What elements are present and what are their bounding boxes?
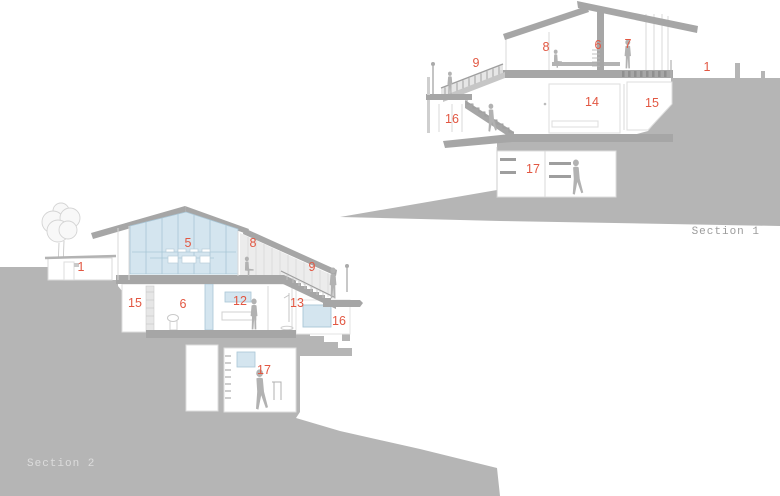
sections-drawing: 9 8 6 7 1 14 15 16 17 Section 1: [0, 0, 780, 496]
room-label-15-s1: 15: [645, 96, 659, 110]
room-label-15-s2: 15: [128, 296, 142, 310]
desk-s1: [552, 62, 620, 66]
roof-left-s1: [503, 6, 589, 40]
window-room17-s2: [237, 352, 255, 367]
section-1-title: Section 1: [692, 226, 760, 238]
lower-slab-s2: [146, 330, 296, 338]
basement-s2: [186, 345, 296, 412]
room-label-6-s1: 6: [595, 38, 602, 52]
room-label-8-s2: 8: [250, 236, 257, 250]
section-1-drawing: 9 8 6 7 1 14 15 16 17 Section 1: [340, 1, 780, 238]
air-under-terrace: [443, 147, 497, 198]
room-17-s1: [497, 151, 616, 197]
room-14: [544, 84, 620, 133]
person-descending-stair-s1: [488, 104, 496, 132]
room-label-16-s2: 16: [332, 314, 346, 328]
glass-door-s2: [205, 284, 213, 330]
room-label-13-s2: 13: [290, 296, 304, 310]
room-label-7-s1: 7: [625, 37, 632, 51]
section-2-drawing: 1 5 8 9 15 6 12 13 16 17 Section 2: [0, 203, 500, 496]
main-floor-slab-s2: [116, 275, 296, 284]
room-label-12-s2: 12: [233, 294, 247, 308]
room-label-14-s1: 14: [585, 95, 599, 109]
section-2-title: Section 2: [27, 458, 95, 470]
room-label-17-s2: 17: [257, 363, 271, 377]
room-label-1-s2: 1: [78, 260, 85, 274]
terrain-marker: [761, 71, 765, 78]
middle-level-s2: [122, 284, 296, 332]
lamp-post-s1: [427, 62, 435, 95]
room-label-6-s2: 6: [180, 297, 187, 311]
room-label-1-s1: 1: [704, 60, 711, 74]
toilet-s2: [168, 315, 179, 322]
room-label-16-s1: 16: [445, 112, 459, 126]
left-wall-s2: [118, 226, 129, 280]
architectural-sections-sheet: 9 8 6 7 1 14 15 16 17 Section 1: [0, 0, 780, 496]
upper-level-walls-s1: [506, 14, 668, 70]
room-label-9-s2: 9: [309, 260, 316, 274]
roof-right-s1: [577, 1, 698, 33]
room-label-9-s1: 9: [473, 56, 480, 70]
room-label-8-s1: 8: [543, 40, 550, 54]
room-label-5-s2: 5: [185, 236, 192, 250]
lamp-post-s2: [345, 264, 349, 292]
room-label-17-s1: 17: [526, 162, 540, 176]
